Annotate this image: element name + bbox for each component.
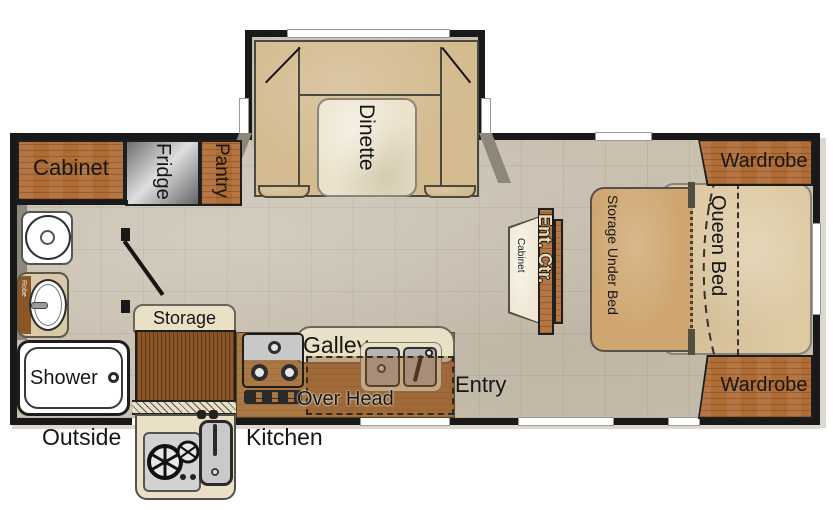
galley-stove (242, 333, 304, 388)
wall-top-left (10, 133, 249, 140)
window-top (595, 132, 652, 141)
dinette-seat-front-left (258, 185, 310, 198)
robe-label: Robe (20, 280, 27, 330)
storage-unit (135, 330, 236, 402)
outside-sink-knob-icon (197, 410, 206, 419)
toilet-flush-icon (40, 230, 55, 245)
shower-drain-icon (108, 372, 119, 383)
wall-bottom-5 (700, 418, 820, 425)
bathroom-wall (17, 200, 128, 205)
dinette-seat-front-right (424, 185, 476, 198)
outside-kitchen-access-door (132, 400, 236, 415)
bed-divider-dashed (737, 183, 739, 355)
window-bottom-right (668, 417, 700, 426)
wardrobe-bottom-label: Wardrobe (718, 374, 810, 397)
wardrobe-top-label: Wardrobe (718, 150, 810, 173)
pantry-label: Pantry (210, 143, 232, 203)
bed-platform-stub-bottom (688, 329, 695, 355)
floorplan-canvas: Dinette Cabinet Fridge Pantry Robe Showe… (0, 0, 833, 510)
stove-burner-icon (251, 364, 268, 381)
stove-vent-icon (244, 390, 302, 404)
queen-bed-label: Queen Bed (706, 195, 729, 345)
wall-bottom-4 (612, 418, 668, 425)
window-bottom-left (360, 417, 450, 426)
ent-ctr-label: Ent. Ctr. (534, 214, 555, 330)
dinette-bench-divider-top (298, 94, 442, 96)
outside-sink-knob-icon (209, 410, 218, 419)
overhead-label: Over Head (297, 388, 394, 411)
entry-label: Entry (455, 372, 506, 398)
door-stub-bottom (121, 300, 130, 313)
cabinet-label: Cabinet (17, 155, 125, 181)
wall-left (10, 133, 17, 425)
shower-label: Shower (30, 367, 98, 390)
window-slideout-top (287, 29, 450, 38)
stove-burner-icon (281, 364, 298, 381)
outside-drain-icon (211, 468, 219, 476)
fridge-label: Fridge (151, 143, 174, 203)
window-right (812, 223, 821, 315)
entry-door-opening (518, 417, 614, 426)
outside-label: Outside (42, 424, 121, 451)
dinette-label: Dinette (354, 104, 378, 192)
outside-burners-icon (145, 434, 201, 490)
dinette-bench-divider-right (440, 47, 442, 196)
bathroom-faucet-icon (31, 302, 48, 309)
wall-bottom-3 (450, 418, 520, 425)
galley-label: Galley (303, 332, 368, 359)
dinette-bench-divider-left (298, 47, 300, 196)
bed-platform-stub-top (688, 182, 695, 208)
under-bed-storage-label: Storage Under Bed (605, 195, 621, 345)
ent-cabinet-label: Cabinet (515, 238, 526, 304)
storage-label: Storage (133, 308, 236, 329)
ent-ctr-back (554, 219, 563, 324)
kitchen-label: Kitchen (246, 424, 323, 451)
stove-pilot-icon (268, 341, 281, 354)
outside-faucet-icon (213, 424, 217, 456)
